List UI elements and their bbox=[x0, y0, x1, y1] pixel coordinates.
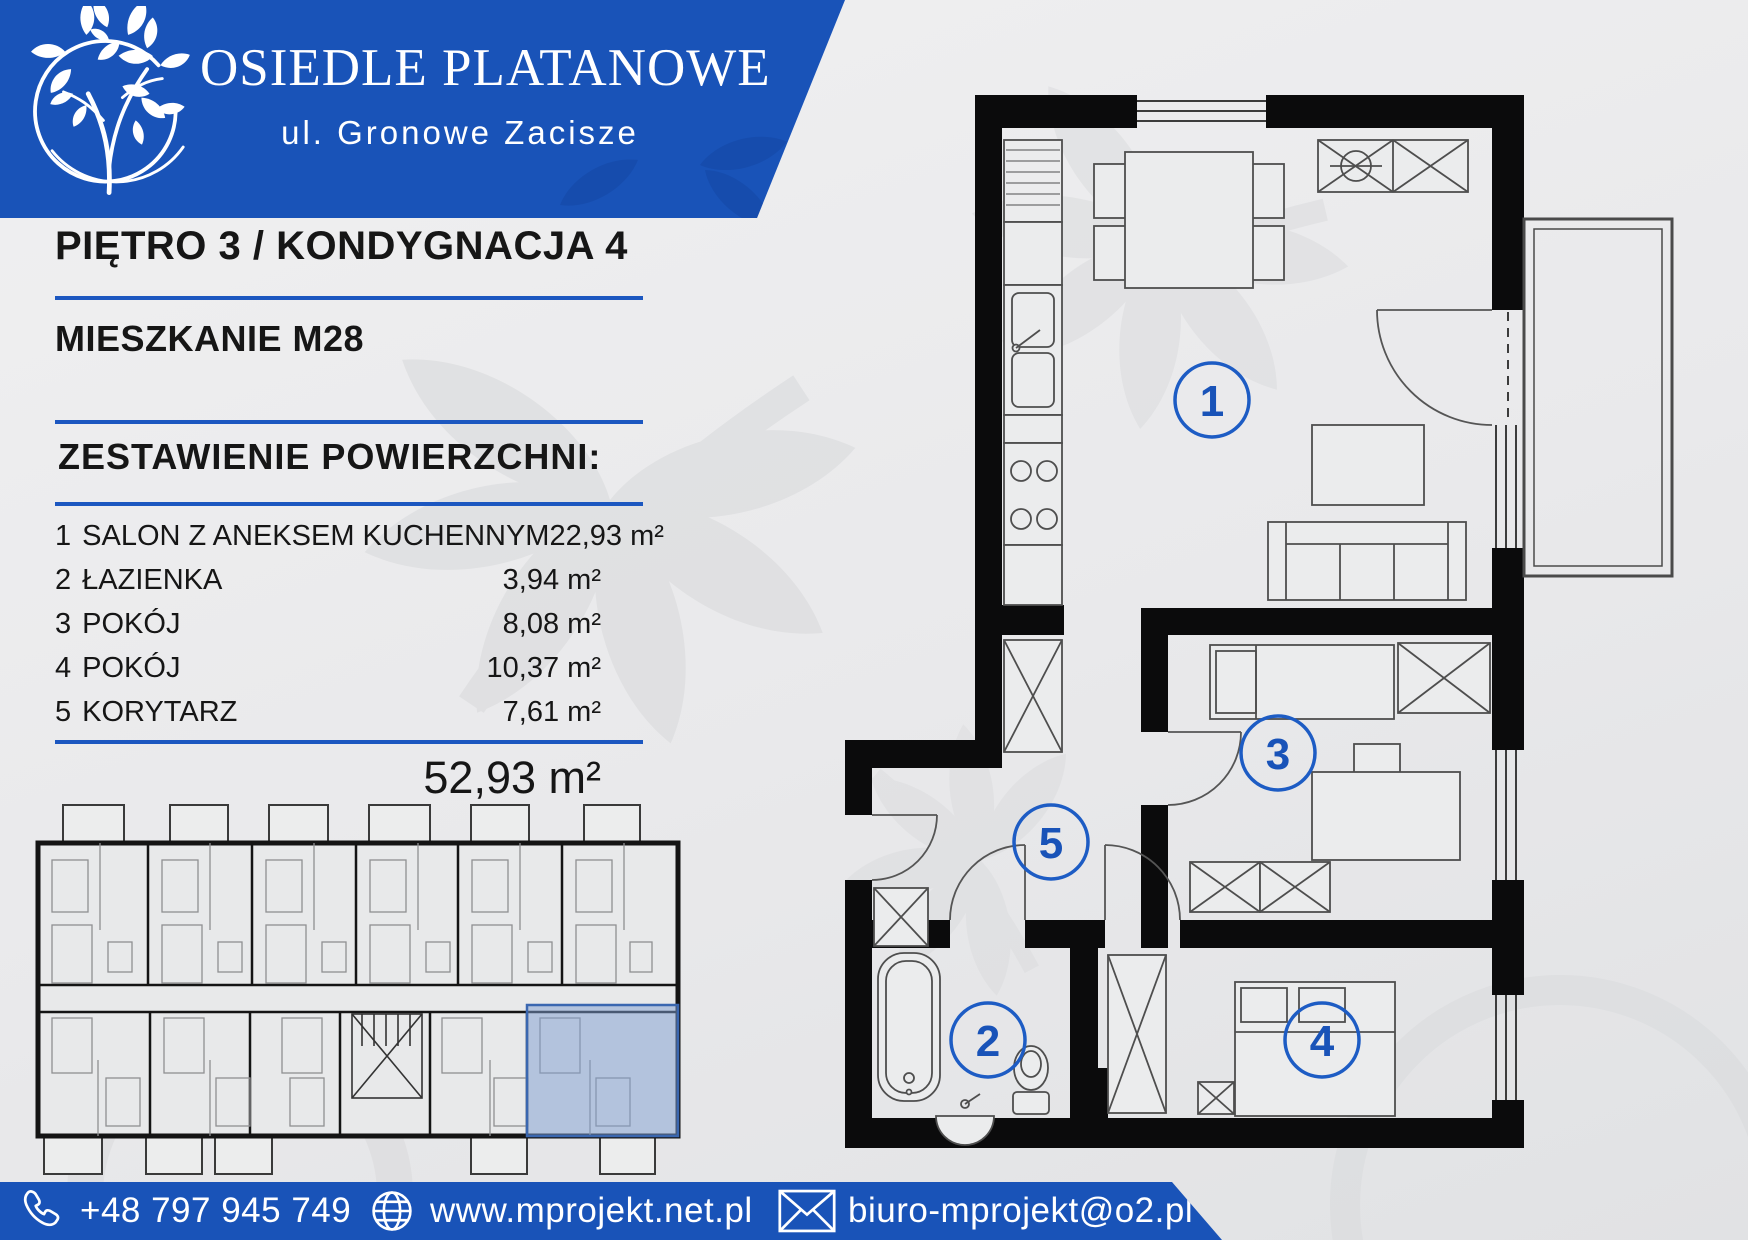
footer-contact-bar: +48 797 945 749 www.mprojekt.net.pl bbox=[0, 1182, 1235, 1240]
room-name: KORYTARZ bbox=[82, 696, 237, 729]
email-address: biuro-mprojekt@o2.pl bbox=[848, 1191, 1193, 1231]
divider-line bbox=[55, 740, 643, 744]
table-row: 1SALON Z ANEKSEM KUCHENNYM 22,93 m² bbox=[55, 514, 601, 558]
svg-text:4: 4 bbox=[1310, 1017, 1335, 1066]
room-marker-3: 3 bbox=[1241, 716, 1315, 790]
coffee-table bbox=[1312, 425, 1424, 505]
total-area: 52,93 m² bbox=[55, 752, 601, 804]
svg-text:5: 5 bbox=[1039, 819, 1063, 868]
room-number: 2 bbox=[55, 564, 71, 597]
dresser-room3 bbox=[1190, 862, 1330, 912]
phone-number: +48 797 945 749 bbox=[80, 1191, 351, 1231]
hall-wardrobe bbox=[874, 888, 928, 946]
svg-text:2: 2 bbox=[976, 1017, 1000, 1066]
room-number: 3 bbox=[55, 608, 71, 641]
svg-text:3: 3 bbox=[1266, 730, 1290, 779]
area-table: 1SALON Z ANEKSEM KUCHENNYM 22,93 m² 2ŁAZ… bbox=[55, 514, 601, 734]
current-apartment-highlight bbox=[527, 1005, 678, 1136]
email-contact[interactable]: biuro-mprojekt@o2.pl bbox=[778, 1182, 1193, 1240]
apartment-heading: MIESZKANIE M28 bbox=[55, 318, 364, 360]
room-area: 7,61 m² bbox=[503, 696, 601, 729]
tree-logo bbox=[16, 6, 206, 212]
apartment-floor-plan: 1 3 5 2 4 bbox=[740, 80, 1685, 1160]
table-row: 4POKÓJ 10,37 m² bbox=[55, 646, 601, 690]
envelope-icon bbox=[778, 1187, 836, 1235]
room-area: 10,37 m² bbox=[487, 652, 601, 685]
tv-cabinet bbox=[1318, 140, 1468, 192]
website-contact[interactable]: www.mprojekt.net.pl bbox=[366, 1182, 753, 1240]
kitchen-cabinet bbox=[1004, 640, 1062, 752]
desk-room3 bbox=[1312, 744, 1460, 860]
nightstand-room4 bbox=[1198, 1082, 1234, 1114]
room-marker-1: 1 bbox=[1175, 363, 1249, 437]
room-name: SALON Z ANEKSEM KUCHENNYM bbox=[82, 520, 549, 553]
bed-room3 bbox=[1210, 645, 1394, 719]
room-number: 5 bbox=[55, 696, 71, 729]
website-url: www.mprojekt.net.pl bbox=[430, 1191, 753, 1231]
stove bbox=[1004, 443, 1062, 605]
header-banner: OSIEDLE PLATANOWE ul. Gronowe Zacisze bbox=[0, 0, 850, 218]
globe-icon bbox=[366, 1185, 418, 1237]
wardrobe-room3 bbox=[1398, 643, 1490, 713]
svg-text:1: 1 bbox=[1200, 377, 1224, 426]
dining-table bbox=[1094, 152, 1284, 288]
table-row: 3POKÓJ 8,08 m² bbox=[55, 602, 601, 646]
room-number: 1 bbox=[55, 520, 71, 553]
phone-contact[interactable]: +48 797 945 749 bbox=[18, 1182, 351, 1240]
toilet bbox=[1013, 1046, 1049, 1114]
room-name: ŁAZIENKA bbox=[82, 564, 222, 597]
table-row: 2ŁAZIENKA 3,94 m² bbox=[55, 558, 601, 602]
room-name: POKÓJ bbox=[82, 652, 180, 685]
street-address: ul. Gronowe Zacisze bbox=[230, 114, 690, 152]
room-marker-5: 5 bbox=[1014, 805, 1088, 879]
wardrobe-room4 bbox=[1108, 955, 1166, 1113]
room-number: 4 bbox=[55, 652, 71, 685]
room-area: 8,08 m² bbox=[503, 608, 601, 641]
development-name: OSIEDLE PLATANOWE bbox=[200, 38, 725, 98]
kitchen-counter bbox=[1004, 140, 1062, 443]
room-name: POKÓJ bbox=[82, 608, 180, 641]
bathtub bbox=[878, 953, 940, 1101]
divider-line bbox=[55, 296, 643, 300]
room-marker-2: 2 bbox=[951, 1003, 1025, 1077]
divider-line bbox=[55, 420, 643, 424]
sofa bbox=[1268, 522, 1466, 600]
room-area: 3,94 m² bbox=[503, 564, 601, 597]
floor-heading: PIĘTRO 3 / KONDYGNACJA 4 bbox=[55, 224, 628, 269]
sink bbox=[936, 1094, 994, 1145]
phone-icon bbox=[18, 1186, 68, 1236]
area-table-title: ZESTAWIENIE POWIERZCHNI: bbox=[58, 436, 601, 478]
balcony bbox=[1524, 219, 1672, 576]
flyer-page: OSIEDLE PLATANOWE ul. Gronowe Zacisze PI… bbox=[0, 0, 1748, 1240]
table-row: 5KORYTARZ 7,61 m² bbox=[55, 690, 601, 734]
room-area: 22,93 m² bbox=[549, 520, 663, 553]
divider-line bbox=[55, 502, 643, 506]
